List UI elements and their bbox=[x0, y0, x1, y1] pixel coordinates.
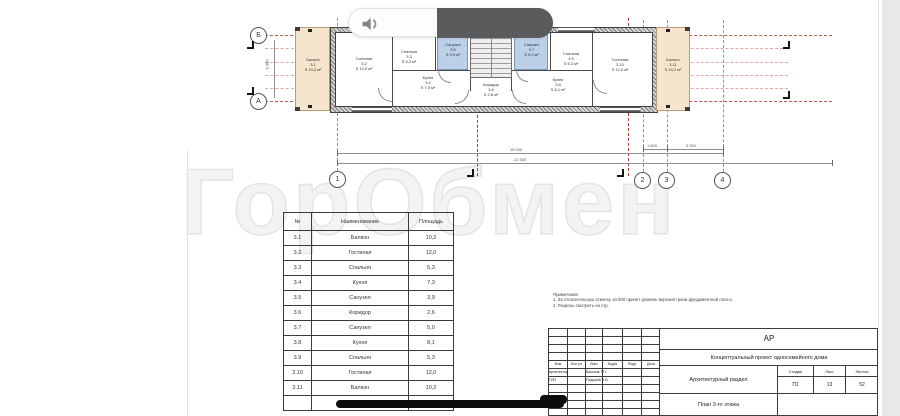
table-cell: Балкон bbox=[312, 381, 409, 396]
area-table-body: 3.1Балкон10,23.2Гостиная12,03.3Спальня5,… bbox=[284, 231, 454, 411]
window bbox=[600, 107, 640, 112]
table-header-row: №НаименованиеПлощадь bbox=[284, 213, 454, 231]
screenshot-root: ГорОбмен Балк bbox=[0, 0, 900, 416]
room-label: Гостиная3.2S 12,0 м² bbox=[342, 56, 386, 71]
table-row: 3.9Спальня5,3 bbox=[284, 351, 454, 366]
table-cell: 3.10 bbox=[284, 366, 312, 381]
room-label: Балкон3.11S 10,2 м² bbox=[657, 57, 689, 72]
dim-tick bbox=[337, 160, 338, 166]
balcony-pier bbox=[295, 27, 300, 31]
section-flag bbox=[783, 41, 790, 49]
axis-bubble-1: 1 bbox=[329, 171, 346, 188]
area-table: №НаименованиеПлощадь 3.1Балкон10,23.2Гос… bbox=[283, 212, 454, 411]
table-cell: 12,0 bbox=[409, 366, 454, 381]
dim-tick bbox=[643, 146, 644, 152]
room-label: Спальня3.9S 5,3 м² bbox=[550, 51, 592, 66]
table-cell: 3.6 bbox=[284, 306, 312, 321]
table-cell: 10,2 bbox=[409, 381, 454, 396]
project-title: Концептуальный проект односемейного дома bbox=[660, 350, 878, 366]
role-gip-name: Педорой Н.В. bbox=[586, 378, 622, 382]
stage-value: П1 bbox=[778, 377, 814, 394]
balcony-mark bbox=[308, 105, 312, 108]
table-row: 3.8Кухня8,1 bbox=[284, 336, 454, 351]
table-cell: 8,1 bbox=[409, 336, 454, 351]
sheet-title: План 3-го этажа bbox=[660, 394, 778, 416]
table-row: 3.10Гостиная12,0 bbox=[284, 366, 454, 381]
home-indicator[interactable] bbox=[336, 400, 564, 408]
table-row: 3.3Спальня5,3 bbox=[284, 261, 454, 276]
room-label: Гостиная3.10S 12,0 м² bbox=[596, 57, 644, 72]
table-cell: 3.9 bbox=[284, 351, 312, 366]
room-label: Санузел3.7S 5,0 м² bbox=[515, 42, 548, 57]
section-flag bbox=[783, 91, 790, 99]
stairs-rail bbox=[491, 32, 492, 78]
table-cell: 3.1 bbox=[284, 231, 312, 246]
dim-text-16000: 16 000 bbox=[510, 147, 522, 152]
table-cell: 3.8 bbox=[284, 336, 312, 351]
role-gip: ГИП bbox=[549, 378, 585, 382]
balcony-mark bbox=[308, 29, 312, 32]
room-label: Санузел3.5S 3,9 м² bbox=[438, 42, 468, 57]
table-row: 3.2Гостиная12,0 bbox=[284, 246, 454, 261]
rev-col-podp: Подп bbox=[623, 362, 641, 366]
area-table-head: №НаименованиеПлощадь bbox=[284, 213, 454, 231]
sheet-value: 13 bbox=[814, 377, 846, 394]
table-row: 3.5Санузел3,9 bbox=[284, 291, 454, 306]
dim-line-22500 bbox=[337, 163, 832, 164]
axis-bubble-A: А bbox=[250, 93, 267, 110]
dim-tick bbox=[832, 160, 833, 166]
dim-text-height: 6 000 bbox=[265, 59, 270, 69]
axis-bubble-4: 4 bbox=[714, 172, 731, 189]
window bbox=[558, 27, 594, 32]
sheets-value: 52 bbox=[846, 377, 878, 394]
interior-wall bbox=[435, 32, 436, 70]
rev-col-ndok: №док bbox=[603, 362, 622, 366]
section-flag bbox=[617, 169, 624, 177]
axis-bubble-3: 3 bbox=[658, 172, 675, 189]
table-cell: Санузел bbox=[312, 291, 409, 306]
table-header-cell: Площадь bbox=[409, 213, 454, 231]
table-cell: 3.4 bbox=[284, 276, 312, 291]
table-cell: 3.11 bbox=[284, 381, 312, 396]
watermark-text: ГорОбмен bbox=[181, 148, 741, 256]
table-total-cell bbox=[284, 396, 312, 411]
balcony-mark bbox=[666, 105, 670, 108]
dim-tick bbox=[667, 146, 668, 152]
section-flag bbox=[247, 41, 254, 49]
grid-line bbox=[641, 328, 642, 416]
redaction-bar bbox=[540, 395, 567, 404]
interior-wall bbox=[592, 32, 593, 107]
table-cell: 10,2 bbox=[409, 231, 454, 246]
table-cell: 5,0 bbox=[409, 321, 454, 336]
dim-text-1800: 1 800 bbox=[647, 143, 657, 148]
room-label: Кухня3.8S 8,1 м² bbox=[536, 77, 580, 92]
table-cell: 3.7 bbox=[284, 321, 312, 336]
room-label: Спальня3.3S 5,3 м² bbox=[388, 49, 430, 64]
dim-text-22500: 22 500 bbox=[514, 157, 526, 162]
dim-line-vertical bbox=[274, 40, 275, 98]
dim-tick bbox=[337, 150, 338, 156]
role-architect-name: Бикозов Т.Н. bbox=[586, 370, 622, 374]
table-cell: 2,6 bbox=[409, 306, 454, 321]
table-row: 3.11Балкон10,2 bbox=[284, 381, 454, 396]
grid-line bbox=[622, 328, 623, 416]
table-cell: Санузел bbox=[312, 321, 409, 336]
role-architect: Архитектор bbox=[549, 370, 585, 374]
rev-col-koluch: Кол.уч bbox=[568, 362, 585, 366]
table-cell: 3.3 bbox=[284, 261, 312, 276]
rev-col-data: Дата bbox=[642, 362, 660, 366]
table-row: 3.1Балкон10,2 bbox=[284, 231, 454, 246]
dim-line-16000 bbox=[337, 153, 723, 154]
table-cell: Гостиная bbox=[312, 246, 409, 261]
table-cell: Кухня bbox=[312, 276, 409, 291]
sheets-label: Листов bbox=[846, 366, 878, 377]
table-cell: Балкон bbox=[312, 231, 409, 246]
table-cell: 5,3 bbox=[409, 351, 454, 366]
window bbox=[352, 107, 392, 112]
section-flag bbox=[467, 169, 474, 177]
note-item: 2. Разрезы смотреть на стр. bbox=[553, 303, 773, 308]
table-cell: 3.5 bbox=[284, 291, 312, 306]
table-cell: 5,3 bbox=[409, 261, 454, 276]
interior-wall bbox=[392, 70, 470, 71]
balcony-mark bbox=[666, 29, 670, 32]
dim-line-small bbox=[643, 149, 723, 150]
section-title: Архитектурный раздел bbox=[660, 366, 778, 394]
table-cell: Кухня bbox=[312, 336, 409, 351]
axis-bubble-2: 2 bbox=[634, 172, 651, 189]
table-row: 3.7Санузел5,0 bbox=[284, 321, 454, 336]
table-row: 3.6Коридор2,6 bbox=[284, 306, 454, 321]
room-label: Балкон3.1S 10,2 м² bbox=[297, 57, 329, 72]
axis-line-section bbox=[477, 115, 478, 176]
rev-col-izm: Изм bbox=[549, 362, 567, 366]
section-flag bbox=[247, 87, 254, 95]
table-cell: 3,9 bbox=[409, 291, 454, 306]
table-row: 3.4Кухня7,3 bbox=[284, 276, 454, 291]
sheet-label: Лист bbox=[814, 366, 846, 377]
table-cell: 12,0 bbox=[409, 246, 454, 261]
speaker-icon bbox=[361, 16, 379, 32]
notes-block: Примечание: 1. За относительную отметку … bbox=[553, 292, 773, 308]
stage-label: Стадия bbox=[778, 366, 814, 377]
rev-col-list: Лист bbox=[586, 362, 602, 366]
sheet-frame-right bbox=[878, 0, 879, 328]
room-label: Коридор3.6S 2,6 м² bbox=[467, 82, 515, 97]
table-cell: Коридор bbox=[312, 306, 409, 321]
table-cell: Гостиная bbox=[312, 366, 409, 381]
dim-tick bbox=[723, 146, 724, 152]
table-header-cell: № bbox=[284, 213, 312, 231]
table-cell: Спальня bbox=[312, 351, 409, 366]
table-cell: 7,3 bbox=[409, 276, 454, 291]
balcony-pier bbox=[295, 107, 300, 111]
room-label: Кухня3.4S 7,3 м² bbox=[406, 75, 450, 90]
volume-level-overlay bbox=[437, 8, 553, 38]
balcony-pier bbox=[685, 27, 690, 31]
table-cell: Спальня bbox=[312, 261, 409, 276]
doc-code: АР bbox=[660, 328, 878, 350]
balcony-pier bbox=[685, 107, 690, 111]
table-cell: 3.2 bbox=[284, 246, 312, 261]
dim-text-3500: 3 500 bbox=[686, 143, 696, 148]
table-header-cell: Наименование bbox=[312, 213, 409, 231]
